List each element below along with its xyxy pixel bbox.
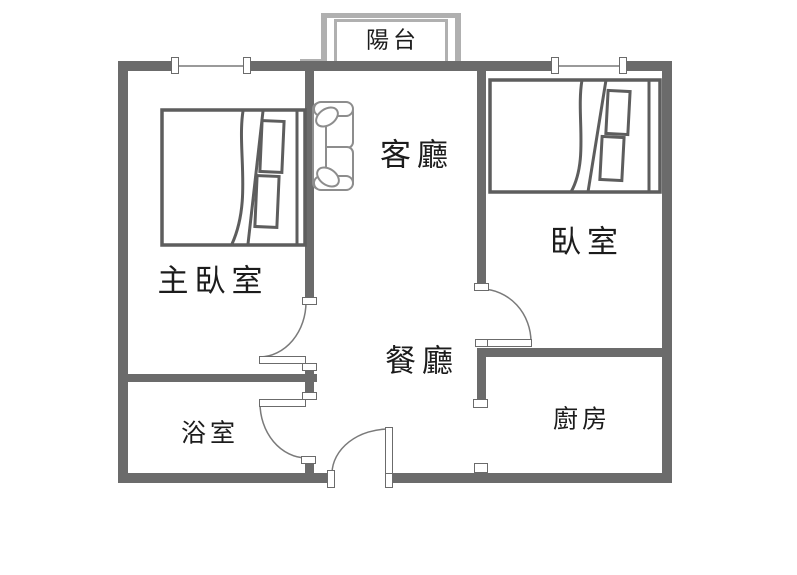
master-bed-pillow-2 bbox=[255, 176, 279, 228]
room-label-master-bedroom: 主臥室 bbox=[158, 266, 269, 297]
master-door-jamb-top bbox=[302, 297, 317, 305]
entrance-door-leaf bbox=[385, 427, 393, 474]
bedroom-bed-pillow-1 bbox=[606, 90, 630, 134]
sofa bbox=[313, 102, 353, 190]
window-master-jamb-right bbox=[243, 57, 251, 74]
bedroom-bed-pillow-2 bbox=[600, 136, 624, 180]
room-label-bedroom: 臥室 bbox=[550, 227, 624, 258]
window-bedroom-jamb-right bbox=[619, 57, 627, 74]
room-label-living-room: 客廳 bbox=[380, 140, 454, 171]
room-label-dining-room: 餐廳 bbox=[385, 346, 459, 377]
bedroom-door-leaf bbox=[487, 339, 532, 347]
bathroom-door-leaf bbox=[259, 399, 306, 407]
master-door-jamb-bottom bbox=[302, 363, 317, 371]
master-door-leaf bbox=[259, 356, 306, 364]
master-bedroom-door-arc bbox=[260, 302, 306, 357]
bathroom-door-jamb-bottom bbox=[301, 456, 316, 464]
bedroom-door-arc bbox=[482, 289, 531, 342]
entrance-jamb-left bbox=[327, 470, 335, 488]
master-bed-pillow-1 bbox=[260, 121, 284, 173]
bedroom-bed-frame bbox=[490, 80, 660, 192]
bedroom-bed bbox=[490, 80, 660, 192]
master-bed bbox=[162, 110, 305, 245]
bathroom-door-arc bbox=[260, 403, 306, 458]
room-label-kitchen: 廚房 bbox=[553, 408, 611, 433]
floor-plan: 陽台 客廳 臥室 主臥室 餐廳 浴室 廚房 bbox=[0, 0, 797, 575]
bedroom-door-jamb-top bbox=[474, 283, 489, 291]
window-bedroom-jamb-left bbox=[551, 57, 559, 74]
room-label-bathroom: 浴室 bbox=[181, 422, 239, 447]
kitchen-passage-jamb-top bbox=[473, 399, 488, 408]
entrance-door-arc bbox=[332, 429, 389, 473]
window-master-jamb-left bbox=[171, 57, 179, 74]
room-label-balcony: 陽台 bbox=[366, 29, 420, 52]
plan-drawing-layer bbox=[0, 0, 797, 575]
kitchen-passage-jamb-bottom bbox=[474, 463, 488, 473]
